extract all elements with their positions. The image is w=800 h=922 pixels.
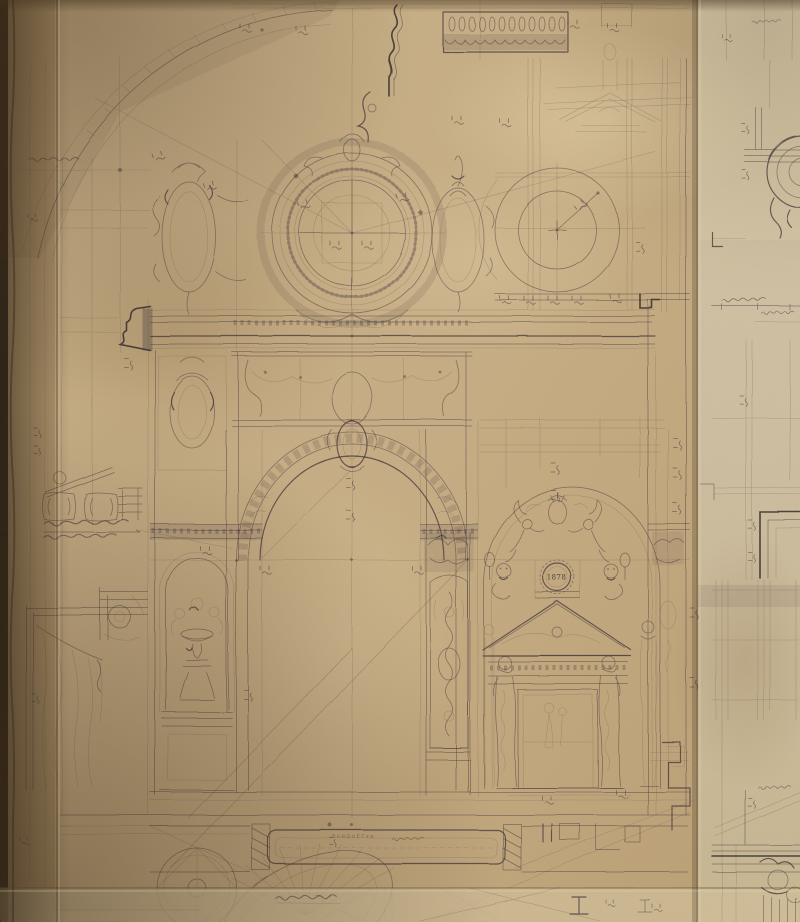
paper-grain bbox=[0, 0, 800, 922]
drawing-canvas: 1878 bbox=[0, 0, 800, 922]
aging-overlay bbox=[0, 0, 800, 922]
scanned-drawing-page: 1878 bbox=[0, 0, 800, 922]
